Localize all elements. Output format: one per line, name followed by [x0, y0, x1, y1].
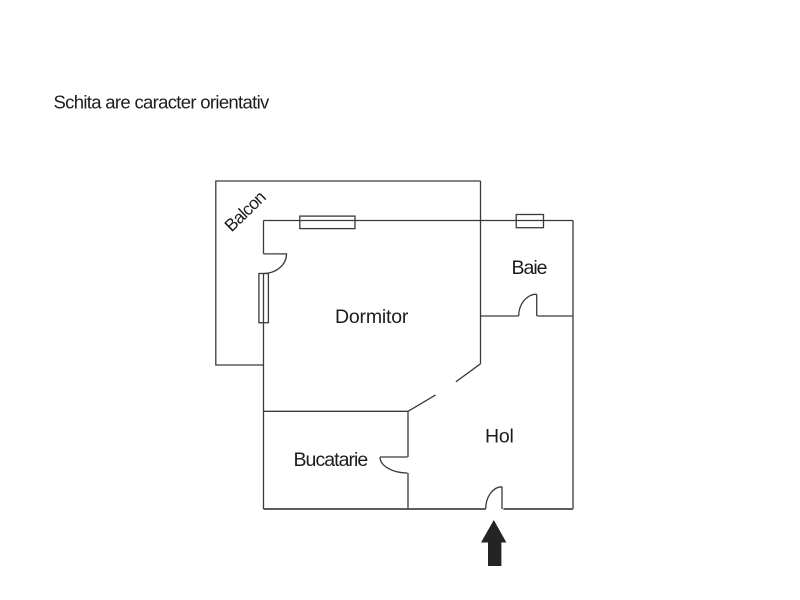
- svg-text:Hol: Hol: [485, 426, 514, 448]
- svg-text:Dormitor: Dormitor: [335, 306, 409, 328]
- svg-text:Bucatarie: Bucatarie: [294, 449, 368, 471]
- svg-text:Schita are caracter orientativ: Schita are caracter orientativ: [54, 92, 270, 113]
- svg-text:Baie: Baie: [512, 257, 547, 279]
